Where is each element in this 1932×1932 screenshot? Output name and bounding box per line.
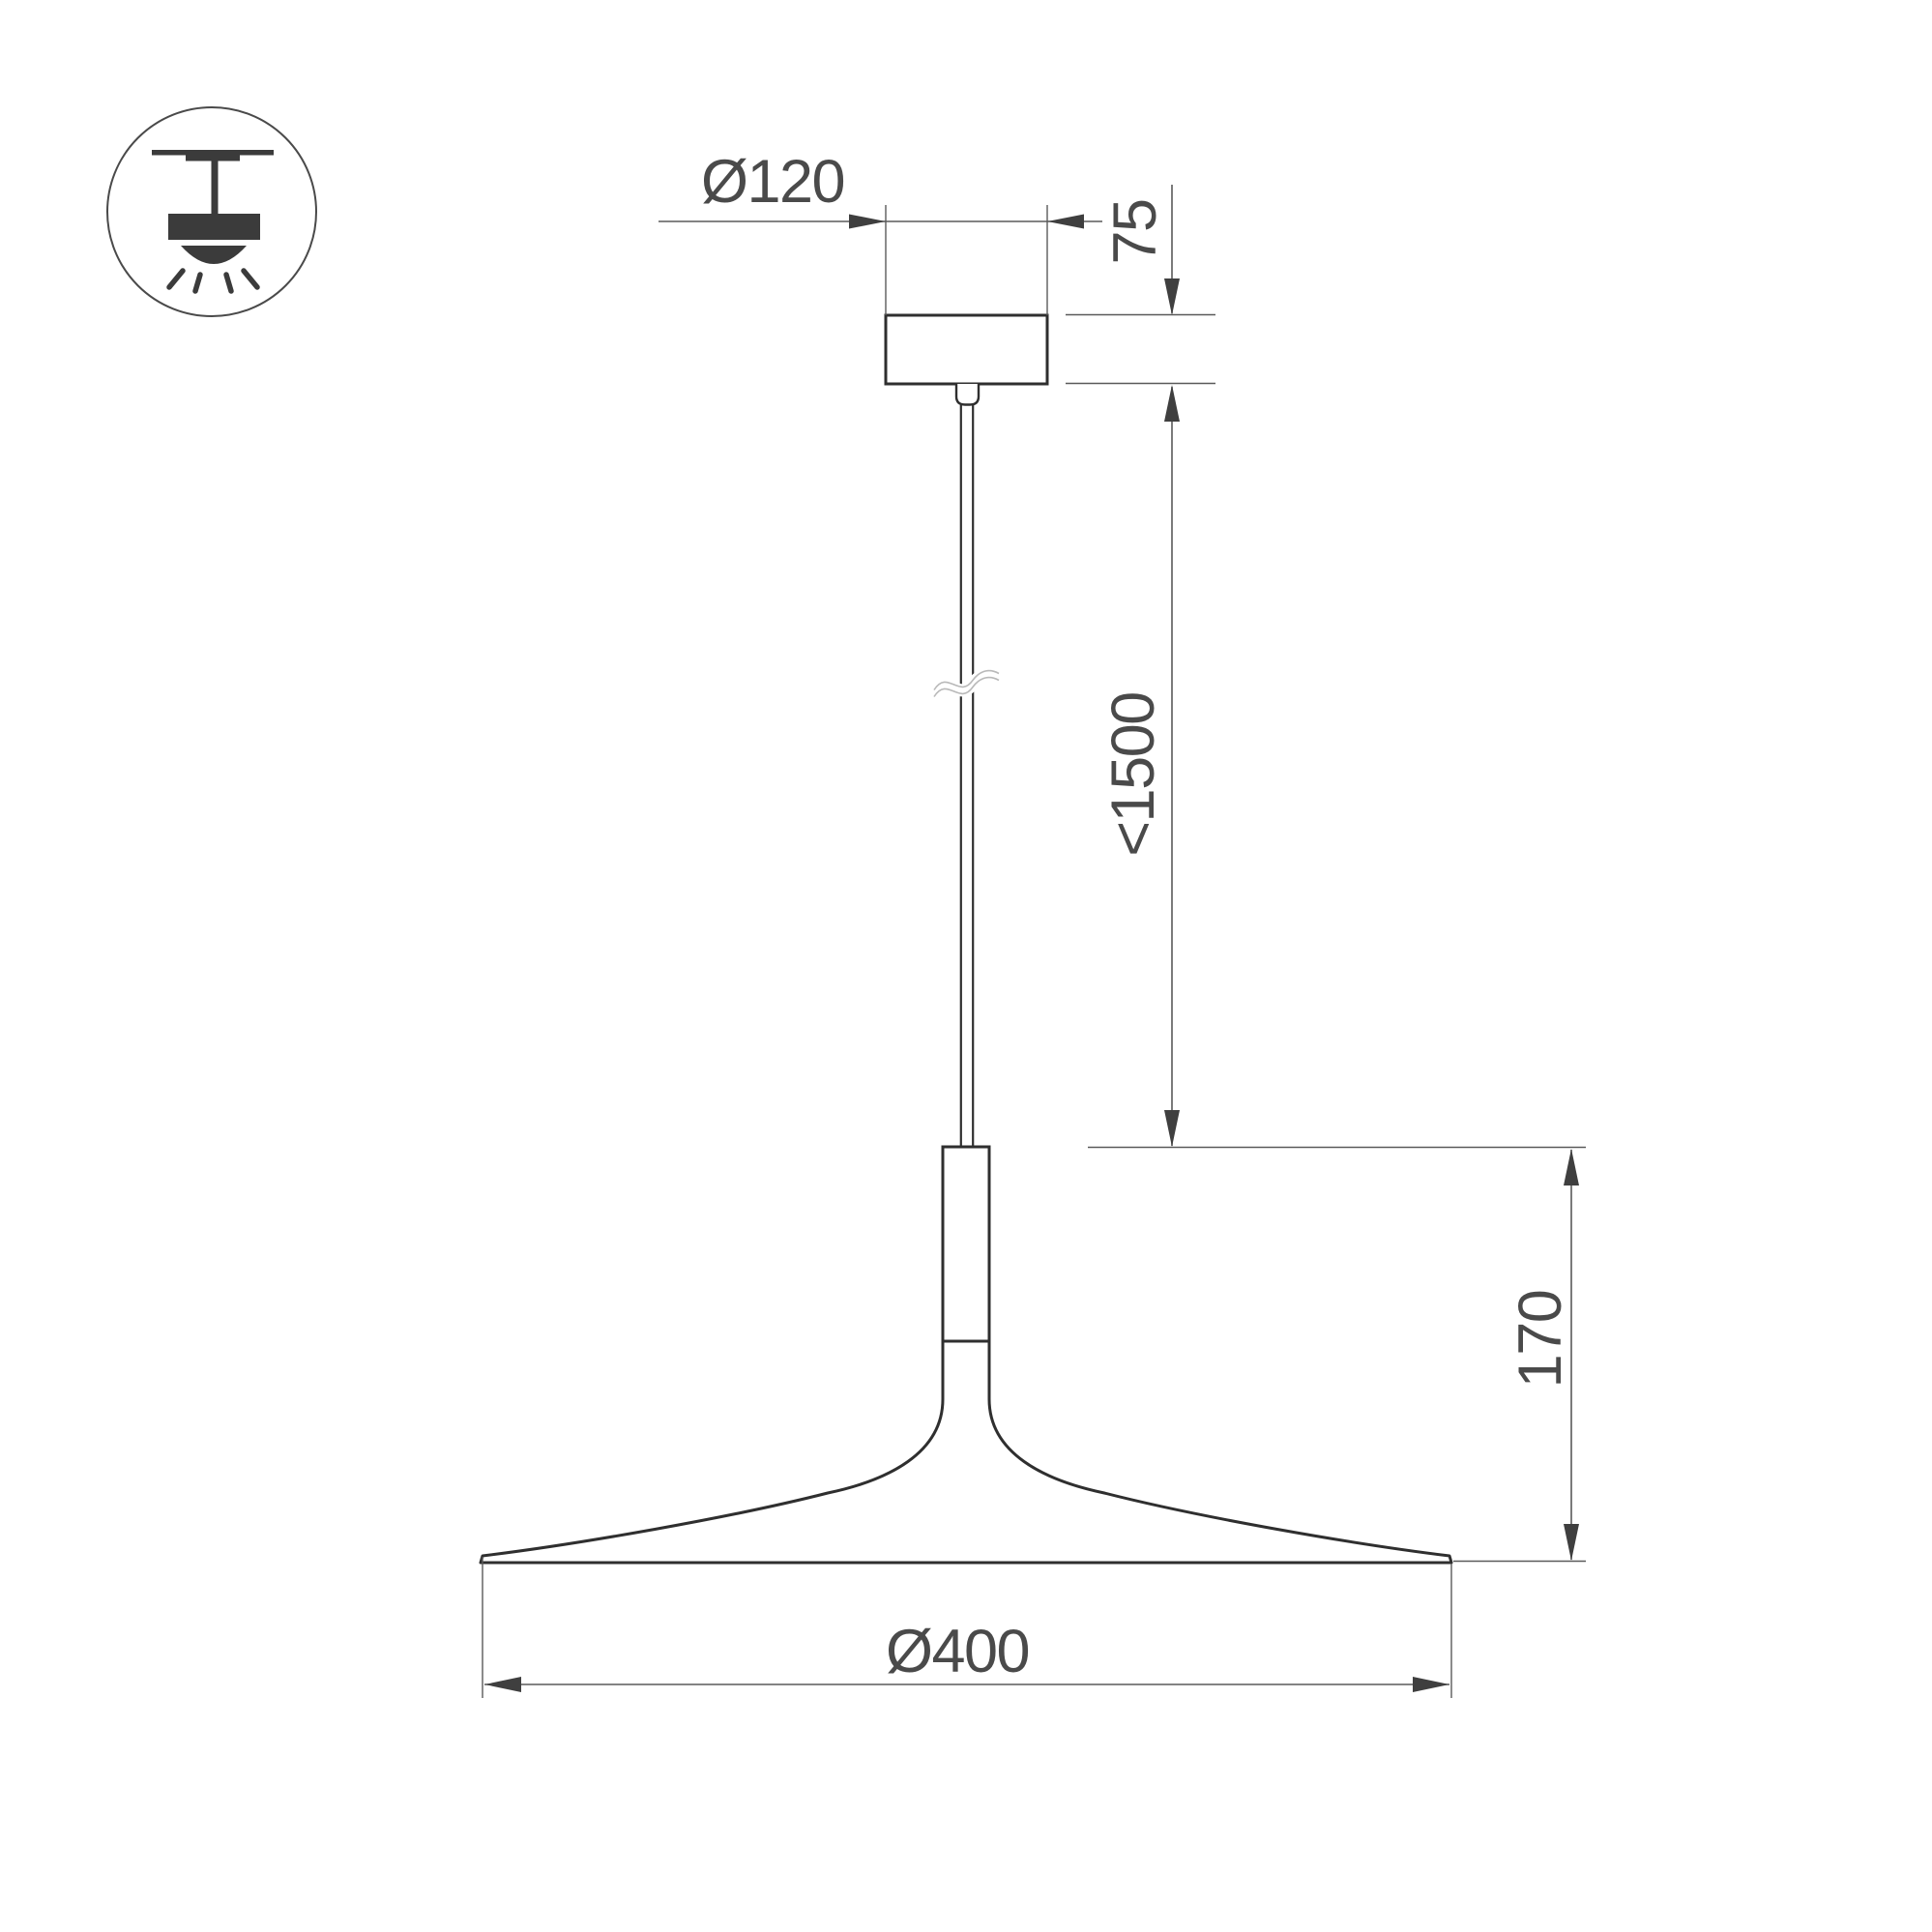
- dimension-suspension-length: <1500: [1088, 385, 1586, 1148]
- ceiling-pendant-light-icon: [107, 107, 316, 316]
- dimension-fixture-height: 170: [1453, 1149, 1586, 1562]
- pendant-lamp-dimension-drawing: Ø120 75 <1500 170 Ø400: [0, 0, 1932, 1932]
- dimension-label-suspension-length: <1500: [1099, 692, 1167, 856]
- stem-tube: [943, 1147, 989, 1341]
- dimension-shade-diameter: Ø400: [483, 1557, 1451, 1698]
- icon-rod: [212, 161, 219, 215]
- arrow-down-icon: [1564, 1524, 1579, 1561]
- cord-connector: [956, 384, 979, 405]
- icon-lamp-body: [168, 214, 260, 240]
- dimension-canopy-diameter: Ø120: [659, 148, 1102, 315]
- arrow-right-icon: [849, 215, 886, 229]
- arrow-up-icon: [1164, 385, 1180, 422]
- suspension-cable: [961, 405, 973, 1147]
- dimension-label-canopy-height: 75: [1101, 199, 1169, 264]
- arrow-down-icon: [1164, 1110, 1180, 1147]
- arrow-left-icon: [484, 1677, 521, 1692]
- cable-break-mark: [934, 671, 999, 697]
- canopy-outline: [886, 315, 1047, 384]
- lamp-drawing: [481, 315, 1451, 1563]
- dimension-label-fixture-height: 170: [1507, 1291, 1574, 1389]
- technical-drawing-page: Ø120 75 <1500 170 Ø400: [0, 0, 1932, 1932]
- dimension-label-shade-diameter: Ø400: [886, 1618, 1029, 1685]
- arrow-right-icon: [1413, 1677, 1449, 1692]
- arrow-up-icon: [1564, 1149, 1579, 1186]
- icon-ceiling-bar: [152, 150, 274, 156]
- dimension-label-canopy-diameter: Ø120: [701, 148, 844, 216]
- arrow-left-icon: [1047, 215, 1084, 229]
- arrow-down-icon: [1164, 278, 1180, 315]
- dimension-canopy-height: 75: [1066, 185, 1215, 384]
- shade-outline: [481, 1341, 1451, 1563]
- icon-mount: [186, 156, 240, 161]
